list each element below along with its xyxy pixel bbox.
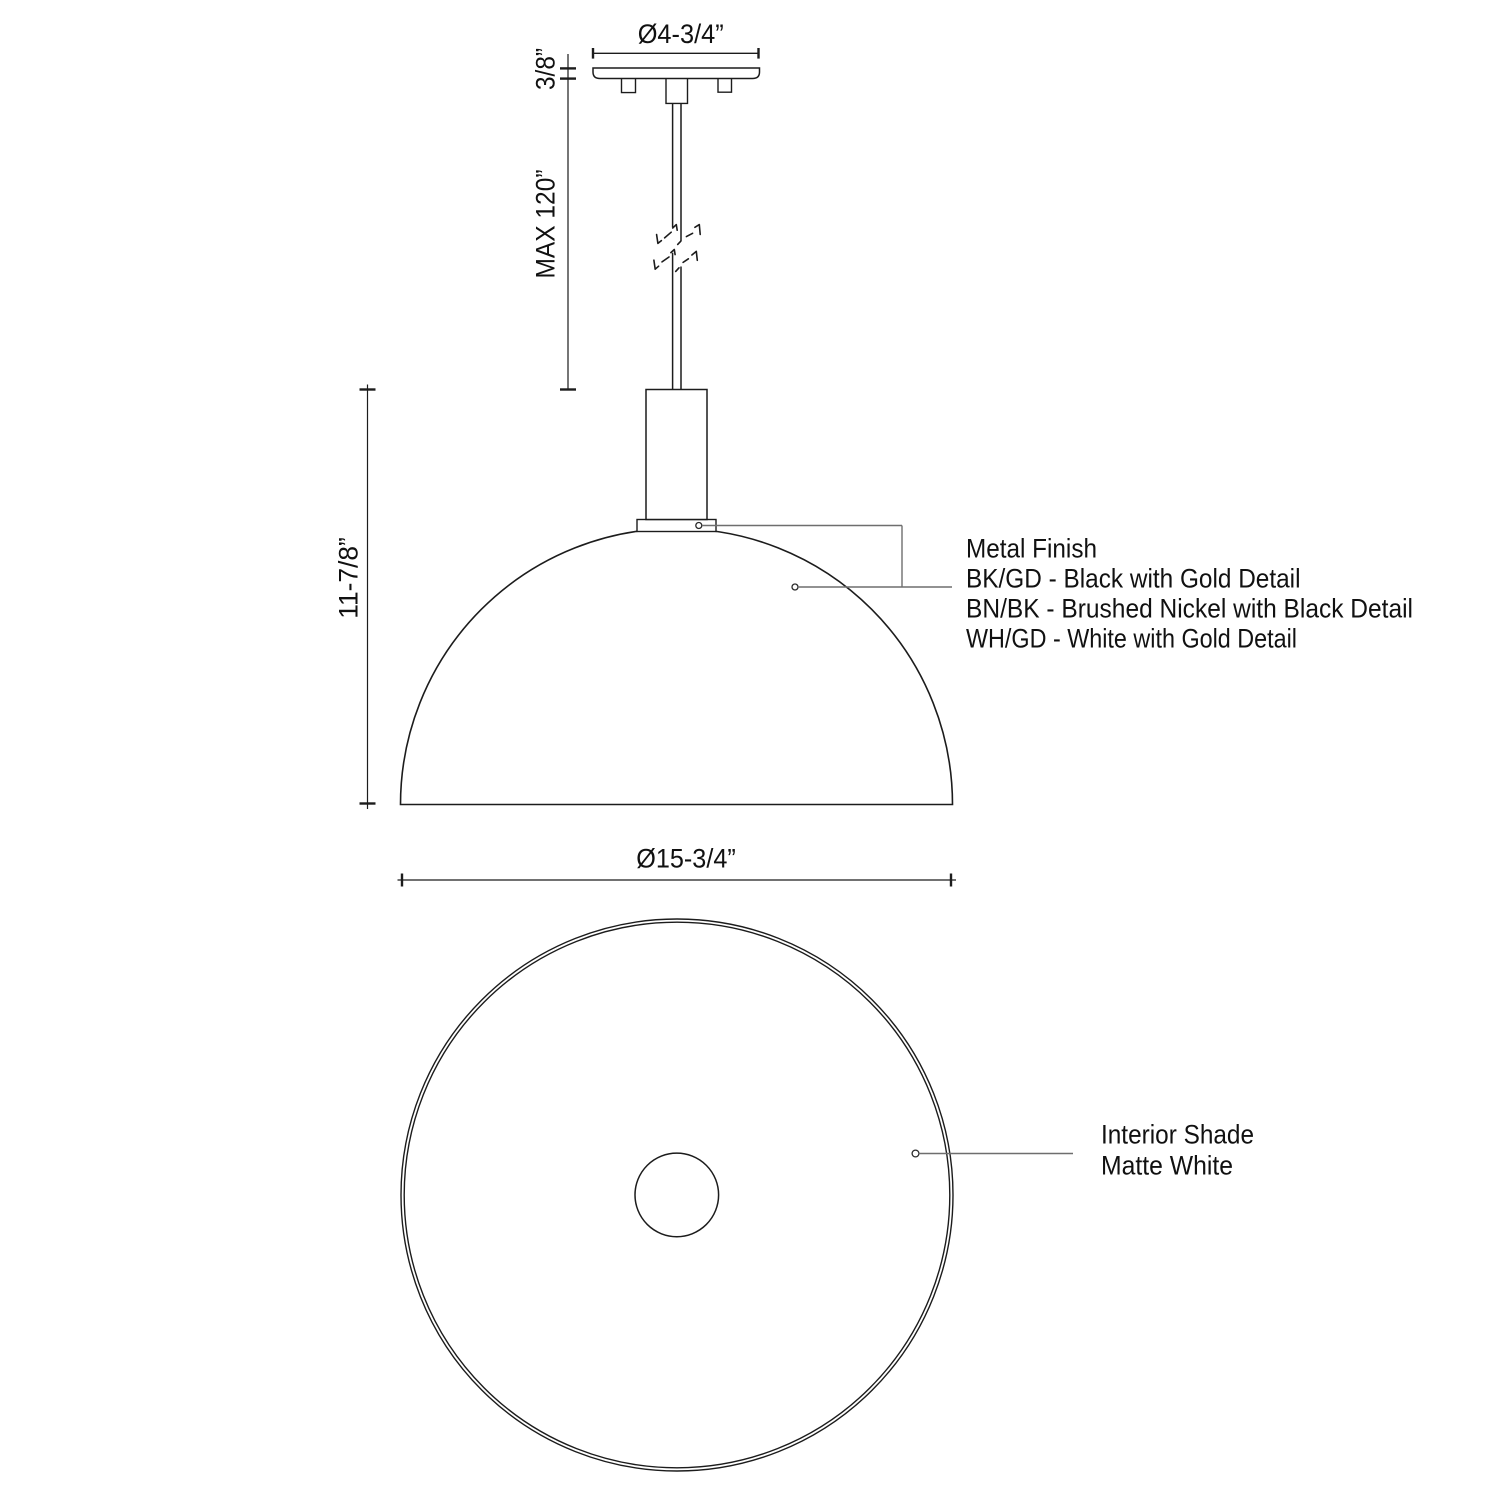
svg-text:BN/BK - Brushed Nickel with Bl: BN/BK - Brushed Nickel with Black Detail <box>966 594 1413 624</box>
svg-text:Metal Finish: Metal Finish <box>966 534 1097 564</box>
svg-text:Ø4-3/4”: Ø4-3/4” <box>638 19 724 49</box>
svg-text:Ø15-3/4”: Ø15-3/4” <box>636 844 736 874</box>
svg-text:Interior Shade: Interior Shade <box>1101 1120 1254 1150</box>
svg-text:MAX 120”: MAX 120” <box>531 170 561 279</box>
svg-text:Matte White: Matte White <box>1101 1151 1233 1181</box>
svg-text:WH/GD - White with Gold Detail: WH/GD - White with Gold Detail <box>966 624 1297 654</box>
svg-text:BK/GD - Black with Gold Detail: BK/GD - Black with Gold Detail <box>966 564 1301 594</box>
svg-text:3/8”: 3/8” <box>531 48 561 90</box>
svg-text:11-7/8”: 11-7/8” <box>333 537 363 619</box>
